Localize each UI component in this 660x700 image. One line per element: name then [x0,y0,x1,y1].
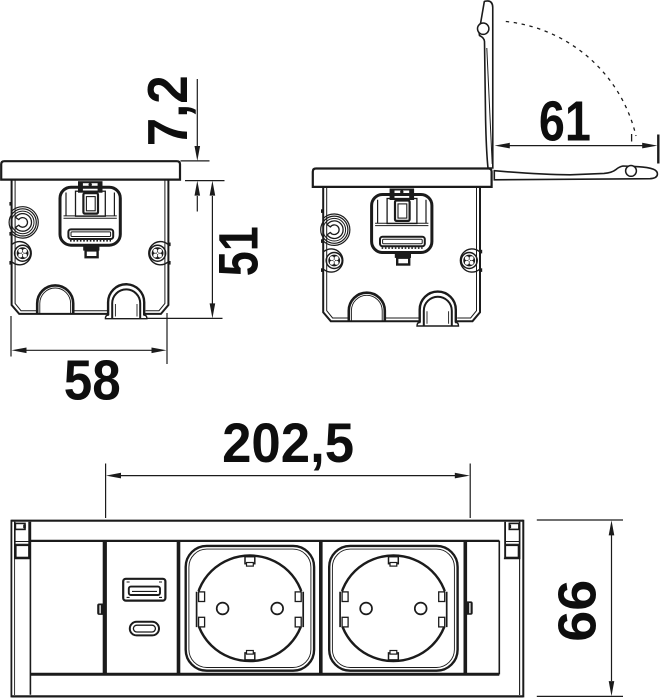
svg-text:58: 58 [64,348,121,411]
svg-text:7,2: 7,2 [136,75,199,146]
svg-text:51: 51 [207,226,269,276]
svg-text:66: 66 [548,580,608,642]
svg-text:202,5: 202,5 [222,412,354,474]
svg-text:61: 61 [539,89,591,152]
